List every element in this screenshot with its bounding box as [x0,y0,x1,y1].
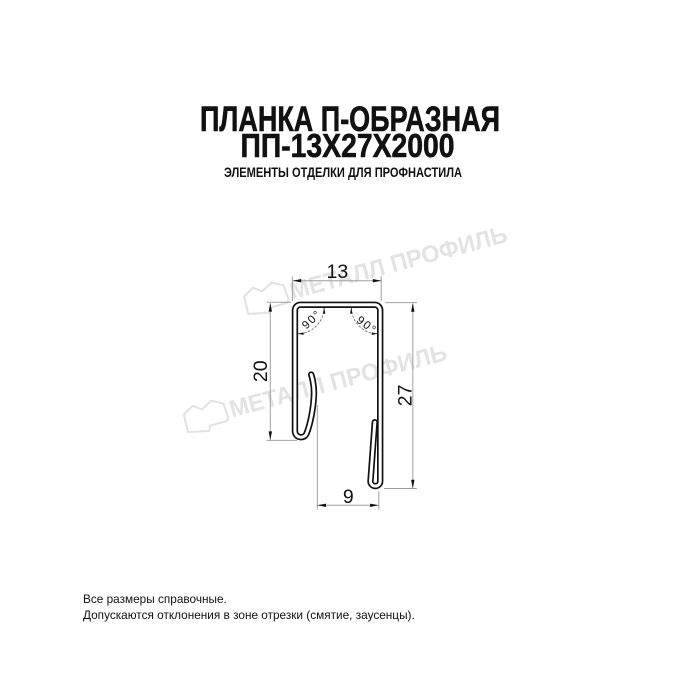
svg-text:ПП-13Х27Х2000: ПП-13Х27Х2000 [241,127,455,164]
svg-text:Допускаются отклонения в зоне: Допускаются отклонения в зоне отрезки (с… [83,608,415,622]
svg-text:13: 13 [327,261,349,283]
svg-text:9: 9 [343,486,354,508]
svg-text:27: 27 [394,385,416,407]
svg-text:20: 20 [250,360,272,382]
svg-text:Все размеры справочные.: Все размеры справочные. [83,592,227,606]
svg-text:ЭЛЕМЕНТЫ ОТДЕЛКИ ДЛЯ ПРОФНАСТИ: ЭЛЕМЕНТЫ ОТДЕЛКИ ДЛЯ ПРОФНАСТИЛА [224,165,462,180]
